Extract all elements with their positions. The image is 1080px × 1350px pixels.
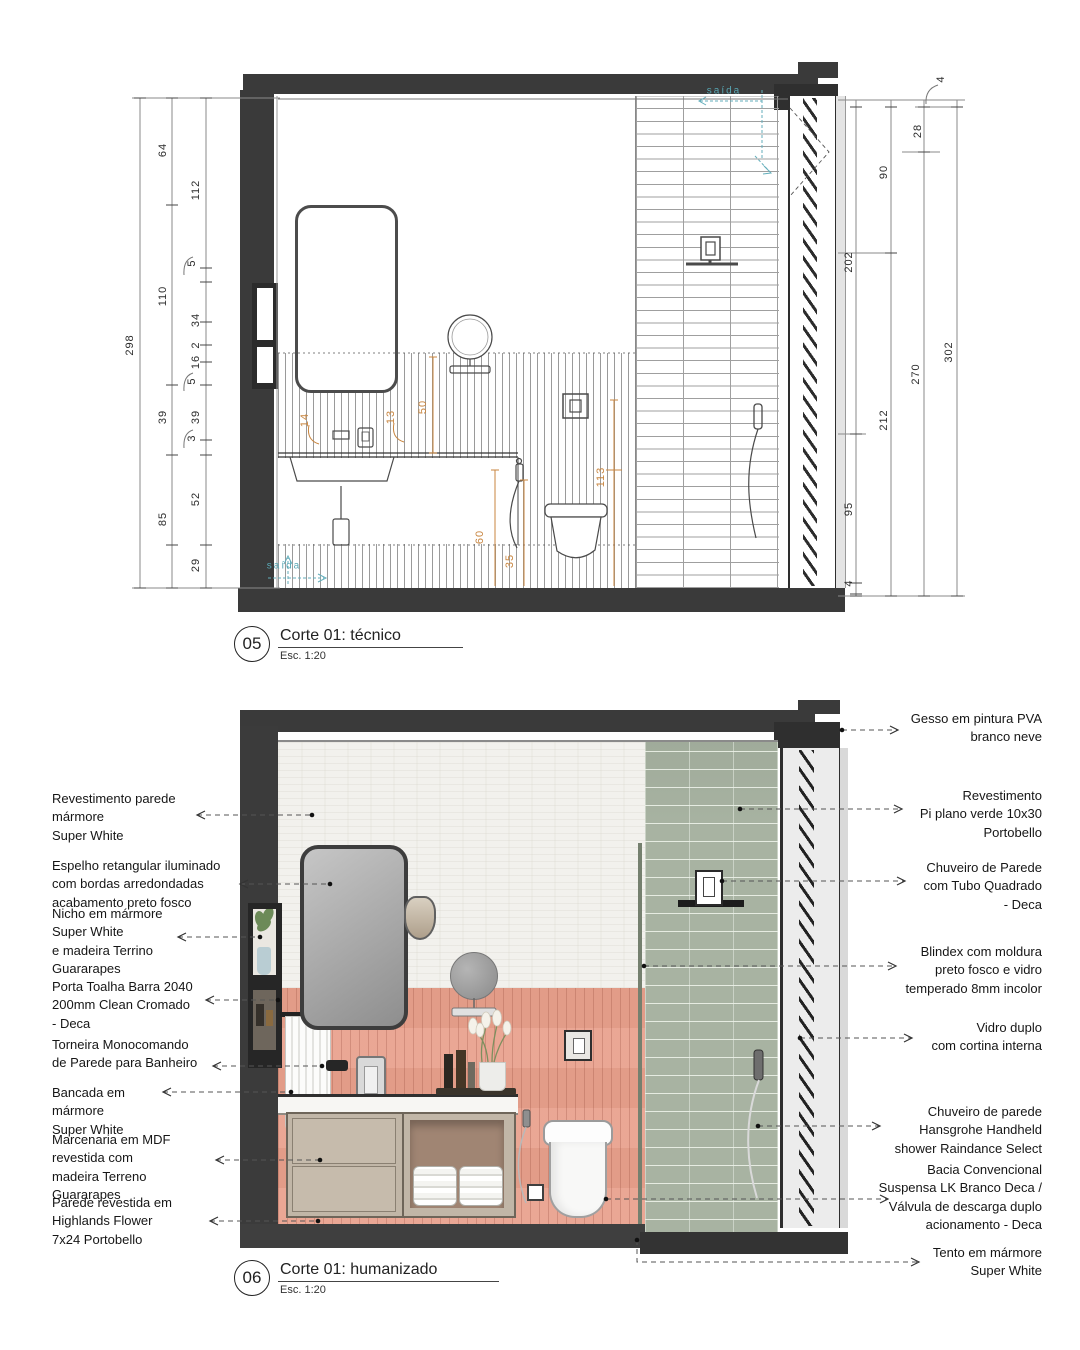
toilet-bowl <box>549 1142 607 1218</box>
tecnico-titleblock: 05 Corte 01: técnico Esc. 1:20 <box>234 626 463 662</box>
flush-button <box>527 1184 544 1201</box>
leader-line <box>904 1034 912 1042</box>
dimension-label: 52 <box>190 492 202 506</box>
dimension-label: 270 <box>910 363 922 384</box>
drawing-number-circle: 05 <box>234 626 270 662</box>
dimension-label: 28 <box>912 124 924 138</box>
bottle <box>444 1054 453 1088</box>
leader-line <box>163 1088 171 1096</box>
shower-wall-grid <box>635 96 779 588</box>
towel-hook <box>326 1060 348 1071</box>
material-callout: Vidro duplo com cortina interna <box>931 1019 1042 1056</box>
dimension-label: 39 <box>190 410 202 424</box>
dimension-label: 2 <box>190 341 202 348</box>
folded-towels <box>459 1166 503 1206</box>
floor-slab <box>240 1224 645 1248</box>
wall-niche <box>248 903 282 1068</box>
mirror <box>300 845 408 1030</box>
ceiling-step <box>798 700 840 714</box>
material-callout: Espelho retangular iluminado com bordas … <box>52 857 220 912</box>
leader-line <box>897 877 905 885</box>
door-lintel <box>774 722 840 748</box>
bottle <box>468 1062 475 1088</box>
leader-line <box>197 811 205 819</box>
flower-vase <box>479 1062 506 1091</box>
dimension-lines-right <box>838 100 965 596</box>
drawing-title: Corte 01: técnico <box>278 627 463 648</box>
shower-floor-slab <box>640 1232 848 1254</box>
material-callout: Chuveiro de Parede com Tubo Quadrado - D… <box>923 859 1042 914</box>
material-callout: Revestimento Pi plano verde 10x30 Portob… <box>920 787 1042 842</box>
material-callout: Parede revestida em Highlands Flower 7x2… <box>52 1194 172 1249</box>
leader-line <box>888 962 896 970</box>
material-callout: Porta Toalha Barra 2040 200mm Clean Crom… <box>52 978 193 1033</box>
leader-line <box>210 1217 218 1225</box>
leader-line <box>890 726 898 734</box>
dimension-ticks-right <box>850 85 963 596</box>
leader-line <box>840 728 845 733</box>
dimension-label: 5 <box>186 377 198 384</box>
ceiling-step <box>798 62 838 78</box>
outer-wall-edge <box>836 96 846 588</box>
magnifying-mirror <box>450 952 498 1000</box>
dimension-label: 90 <box>878 165 890 179</box>
architectural-sheet: { "colors": { "structure": "#3a3a3a", "p… <box>0 0 1080 1350</box>
leader-line <box>911 1258 919 1266</box>
leader-line <box>880 1195 888 1203</box>
dimension-label: 298 <box>124 334 136 355</box>
material-callout: Blindex com moldura preto fosco e vidro … <box>905 943 1042 998</box>
floor-slab <box>238 588 845 612</box>
dimension-label: 16 <box>190 355 202 369</box>
wall-sconce <box>404 896 436 940</box>
material-callout: Bacia Convencional Suspensa LK Branco De… <box>879 1161 1042 1235</box>
bottle <box>266 1010 273 1026</box>
dimension-label: 110 <box>157 286 169 307</box>
material-callout: Chuveiro de parede Hansgrohe Handheld sh… <box>895 1103 1042 1158</box>
niche-opening-bottom <box>257 347 273 383</box>
light-switch <box>564 1030 592 1061</box>
ceiling-slab <box>243 74 818 94</box>
material-callout: Bancada em mármore Super White <box>52 1084 125 1139</box>
vanity-drawers <box>286 1112 404 1218</box>
drawing-number: 05 <box>243 634 262 654</box>
dimension-ticks-left <box>134 98 212 588</box>
material-callout: Torneira Monocomando de Parede para Banh… <box>52 1036 197 1073</box>
material-callout: Gesso em pintura PVA branco neve <box>911 710 1042 747</box>
leader-line <box>206 996 214 1004</box>
drawing-number: 06 <box>243 1268 262 1288</box>
drawing-scale: Esc. 1:20 <box>278 1284 499 1296</box>
leader-line <box>894 805 902 813</box>
material-callout: Tento em mármore Super White <box>933 1244 1042 1281</box>
folded-towels <box>413 1166 457 1206</box>
material-callout: Marcenaria em MDF revestida com madeira … <box>52 1131 170 1205</box>
drawing-scale: Esc. 1:20 <box>278 650 463 662</box>
dimension-label: 64 <box>157 143 169 157</box>
leader-line <box>213 1062 221 1070</box>
niche-shelf-top <box>253 909 276 975</box>
dimension-label: 4 <box>935 75 947 82</box>
outer-wall-edge <box>840 748 848 1228</box>
vanity-open-shelf <box>402 1112 516 1218</box>
switch-key <box>573 1038 585 1054</box>
niche-opening-top <box>257 288 273 340</box>
material-callout: Nicho em mármore Super White e madeira T… <box>52 905 163 979</box>
dimension-label: 34 <box>190 313 202 327</box>
dimension-label: 212 <box>878 409 890 430</box>
mirror <box>295 205 398 393</box>
green-tile-wall <box>645 742 778 1238</box>
dimension-label: 85 <box>157 512 169 526</box>
bottle <box>256 1004 264 1026</box>
dimension-label: 302 <box>943 341 955 362</box>
dimension-label: 5 <box>186 259 198 266</box>
leader-line <box>872 1122 880 1130</box>
ceiling-slab <box>240 710 815 732</box>
drawing-number-circle: 06 <box>234 1260 270 1296</box>
drawer-front <box>292 1166 396 1212</box>
shower-head <box>695 870 723 906</box>
drawing-title: Corte 01: humanizado <box>278 1261 499 1282</box>
faucet-face <box>364 1066 378 1094</box>
glass-door-hatch <box>803 98 817 586</box>
vanity-section-box <box>278 458 518 544</box>
vase <box>257 947 271 975</box>
material-callout: Revestimento parede mármore Super White <box>52 790 176 845</box>
shower-head-face <box>703 877 715 897</box>
leader-line <box>216 1156 224 1164</box>
glass-partition <box>638 843 642 1238</box>
leader-line <box>178 933 186 941</box>
glass-door-hatch <box>799 750 814 1226</box>
dimension-label: 3 <box>186 434 198 441</box>
bottle <box>456 1050 466 1088</box>
dimension-label: 39 <box>157 410 169 424</box>
dimension-label: 112 <box>190 180 202 201</box>
dimension-label: 29 <box>190 558 202 572</box>
humanizado-titleblock: 06 Corte 01: humanizado Esc. 1:20 <box>234 1260 499 1296</box>
shelf-opening <box>410 1120 504 1208</box>
wall-niche <box>252 283 278 389</box>
drawer-front <box>292 1118 396 1164</box>
niche-shelf-bottom <box>253 990 276 1050</box>
